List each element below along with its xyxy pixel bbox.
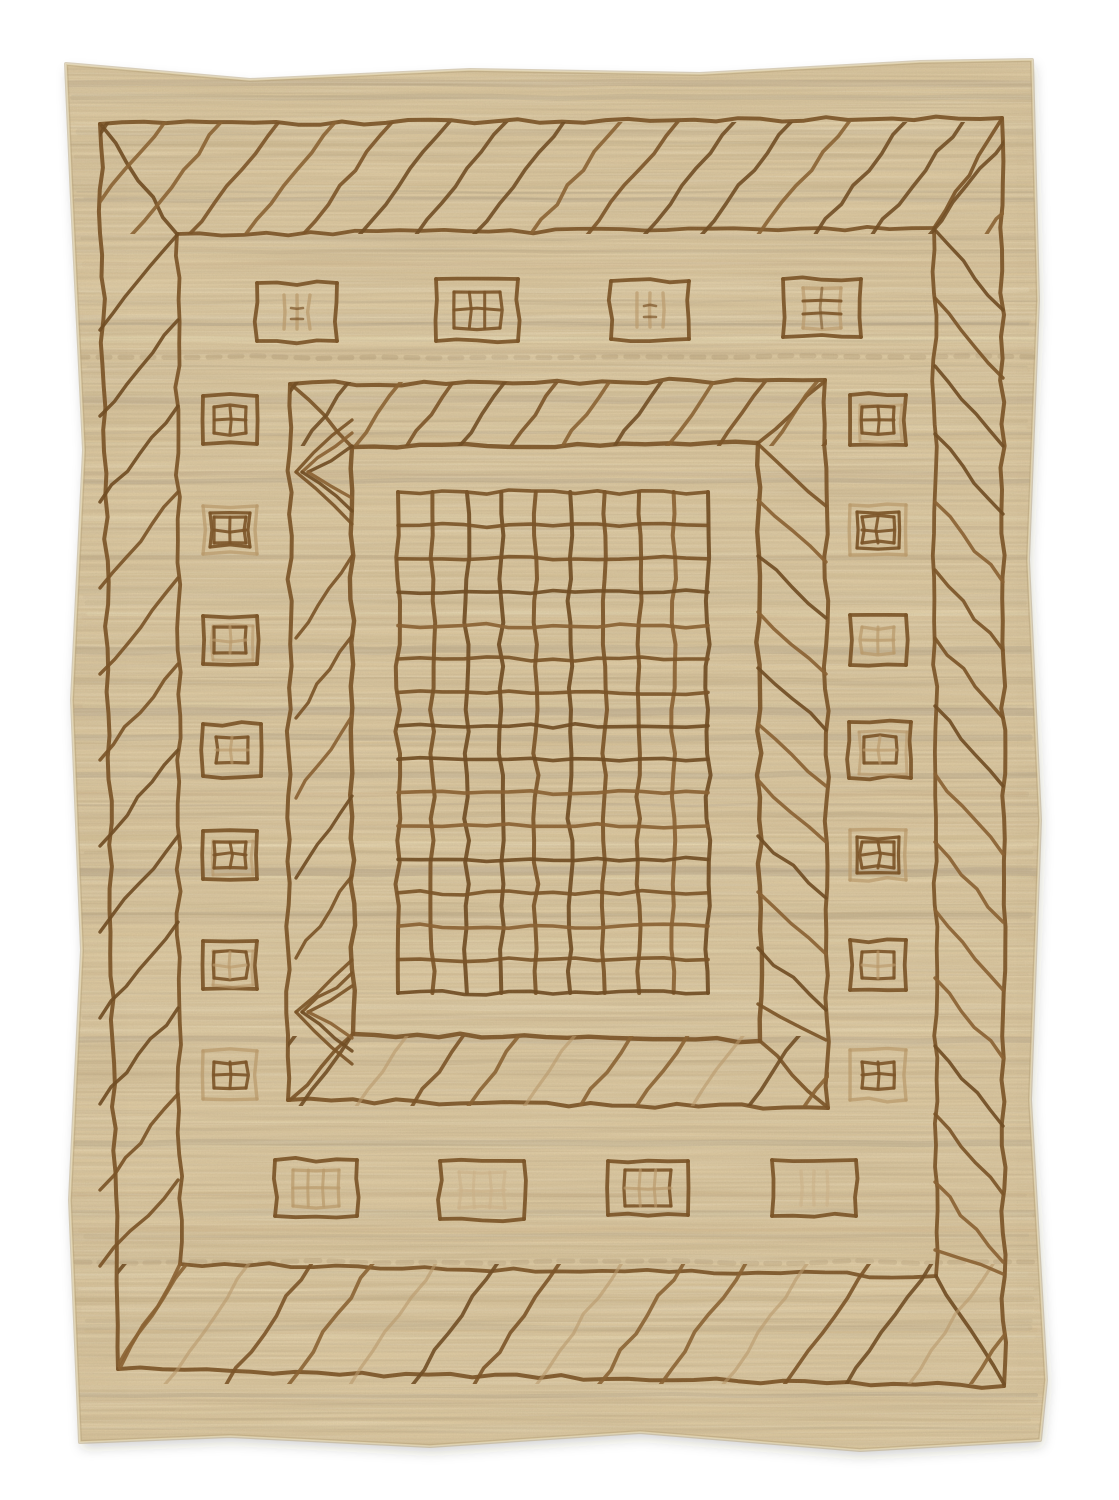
grain-texture (60, 48, 1060, 1462)
rug-photo (0, 0, 1119, 1500)
rug-image (0, 0, 1119, 1500)
